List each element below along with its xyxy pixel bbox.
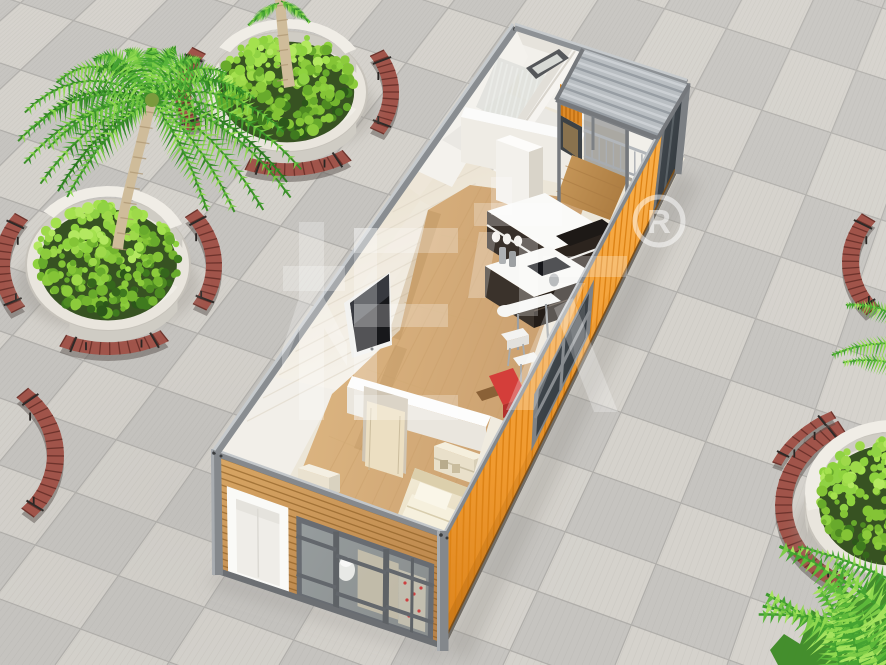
svg-text:R: R: [647, 203, 671, 240]
